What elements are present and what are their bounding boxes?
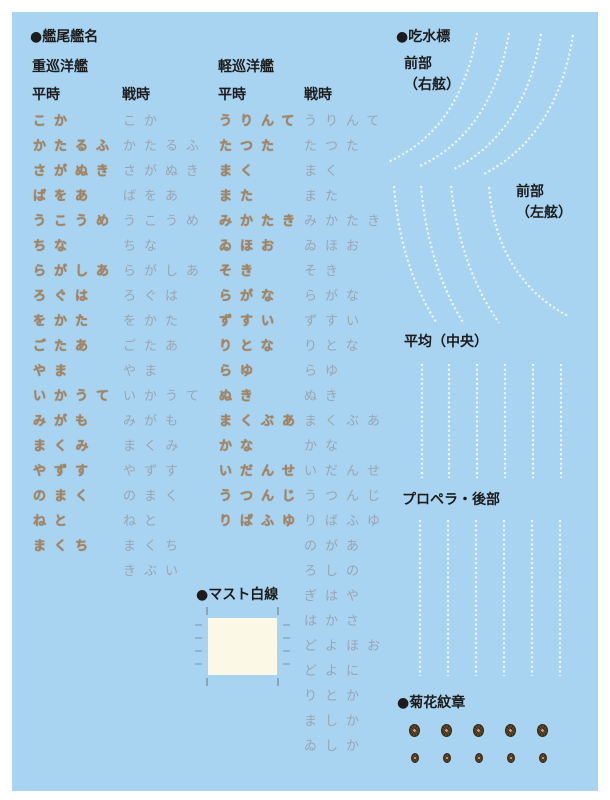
ship-name-gold: うこうめ [33, 209, 117, 234]
registration-tick [283, 663, 290, 665]
propeller-rear-label: プロペラ・後部 [402, 490, 500, 510]
ship-name-gold: らゆ [219, 359, 303, 384]
registration-tick [277, 607, 279, 615]
registration-tick [277, 678, 279, 686]
ship-name-gold: ちな [33, 234, 117, 259]
ship-name-gold: まくち [33, 534, 117, 559]
ship-name-gray: らがな [304, 284, 388, 309]
heavy-wartime-header: 戦時 [122, 85, 150, 105]
ship-name-gray: ずすい [304, 309, 388, 334]
ship-name-gold: まく [219, 159, 303, 184]
ship-name-gold: やま [33, 359, 117, 384]
ship-name-gold: そき [219, 259, 303, 284]
chrysanthemum-crest-icon [441, 724, 452, 737]
ship-name-gold: やずす [33, 459, 117, 484]
ship-name-gold: みかたき [219, 209, 303, 234]
ship-name-gray: りとか [304, 684, 388, 709]
ship-name-gray: まく [304, 159, 388, 184]
ship-name-gray: ぬき [304, 384, 388, 409]
ship-name-gold: こか [33, 109, 117, 134]
mast-white-line-title: ●マスト白線 [196, 585, 278, 605]
ship-name-gold: さがぬき [33, 159, 117, 184]
heavy-peacetime-header: 平時 [32, 85, 60, 105]
ship-name-gray: ろぐは [123, 284, 207, 309]
ship-name-gray: やずす [123, 459, 207, 484]
ship-name-gray: さがぬき [123, 159, 207, 184]
chrysanthemum-crest-icon [475, 753, 483, 763]
ship-name-gray: はかさ [304, 609, 388, 634]
ship-name-gray: ぎはや [304, 584, 388, 609]
light-peacetime-header: 平時 [218, 85, 246, 105]
chrysanthemum-crest-icon [505, 724, 516, 737]
ship-name-gray: いだんせ [304, 459, 388, 484]
registration-tick [195, 663, 202, 665]
ship-name-gray: まくち [123, 534, 207, 559]
ship-name-gray: うこうめ [123, 209, 207, 234]
chrysanthemum-crest-icon [409, 724, 420, 737]
item [411, 753, 571, 763]
ship-name-gray: ゐほお [304, 234, 388, 259]
ship-name-gold: みがも [33, 409, 117, 434]
ship-name-gold: ろぐは [33, 284, 117, 309]
registration-tick [206, 607, 208, 615]
ship-name-gray: こか [123, 109, 207, 134]
ship-name-gold: また [219, 184, 303, 209]
chrysanthemum-crest-icon [473, 724, 484, 737]
ship-name-gray: のがあ [304, 534, 388, 559]
ship-name-gray: りばふゆ [304, 509, 388, 534]
heavy-wartime-name-column: こかかたるふさがぬきばをあうこうめちならがしあろぐはをかたごたあやまいかうてみが… [123, 109, 207, 584]
item [409, 724, 569, 737]
draft-marks-title: ●吃水標 [396, 27, 450, 47]
registration-tick [195, 637, 202, 639]
ship-name-gray: かたるふ [123, 134, 207, 159]
ship-name-gold: ばをあ [33, 184, 117, 209]
heavy-cruiser-header: 重巡洋艦 [32, 57, 88, 77]
ship-name-gold: ねと [33, 509, 117, 534]
registration-tick [283, 637, 290, 639]
ship-name-gray: どよほお [304, 634, 388, 659]
chrysanthemum-crest-icon [411, 753, 419, 763]
chrysanthemum-crest-icon [539, 753, 547, 763]
light-wartime-name-column: うりんてたつたまくまたみかたきゐほおそきらがなずすいりとならゆぬきまくぶあかない… [304, 109, 388, 759]
ship-name-gray: たつた [304, 134, 388, 159]
ship-name-gold: うつんじ [219, 484, 303, 509]
ship-name-gray: ねと [123, 509, 207, 534]
ship-name-gray: うつんじ [304, 484, 388, 509]
ship-name-gray: やま [123, 359, 207, 384]
ship-name-gold: ごたあ [33, 334, 117, 359]
ship-name-gold: ゐほお [219, 234, 303, 259]
average-center-label: 平均（中央） [404, 332, 488, 352]
ship-name-gray: らがしあ [123, 259, 207, 284]
chrysanthemum-crest-icon [537, 724, 548, 737]
chrysanthemum-crest-icon [507, 753, 515, 763]
ship-name-gold: らがな [219, 284, 303, 309]
ship-name-gray: ちな [123, 234, 207, 259]
ship-name-gold: うりんて [219, 109, 303, 134]
ship-name-gold: らがしあ [33, 259, 117, 284]
registration-tick [195, 624, 202, 626]
ship-name-gray: ゐしか [304, 734, 388, 759]
registration-tick [283, 624, 290, 626]
heavy-peacetime-name-column: こかかたるふさがぬきばをあうこうめちならがしあろぐはをかたごたあやまいかうてみが… [33, 109, 117, 559]
mast-white-line-decal [208, 618, 277, 675]
chrysanthemum-crest-title: ●菊花紋章 [397, 693, 465, 713]
ship-name-gold: ずすい [219, 309, 303, 334]
ship-name-gold: いかうて [33, 384, 117, 409]
light-wartime-header: 戦時 [304, 85, 332, 105]
decal-sheet-page: ●艦尾艦名 重巡洋艦 軽巡洋艦 平時 戦時 平時 戦時 こかかたるふさがぬきばを… [0, 0, 610, 800]
ship-name-gray: きぶい [123, 559, 207, 584]
registration-tick [206, 678, 208, 686]
ship-name-gray: まくぶあ [304, 409, 388, 434]
ship-name-gold: をかた [33, 309, 117, 334]
ship-name-gray: いかうて [123, 384, 207, 409]
light-cruiser-header: 軽巡洋艦 [218, 57, 274, 77]
ship-name-gold: りばふゆ [219, 509, 303, 534]
crest-row-large [409, 724, 569, 737]
ship-name-gray: みがも [123, 409, 207, 434]
ship-name-gray: のまく [123, 484, 207, 509]
ship-name-gold: のまく [33, 484, 117, 509]
ship-name-gold: まくぶあ [219, 409, 303, 434]
ship-name-gray: うりんて [304, 109, 388, 134]
ship-name-gray: まくみ [123, 434, 207, 459]
crest-row-small [411, 753, 571, 763]
ship-name-gray: どよに [304, 659, 388, 684]
ship-name-gray: ばをあ [123, 184, 207, 209]
front-port-label: 前部 （左舷） [516, 182, 572, 224]
ship-name-gray: りとな [304, 334, 388, 359]
front-starboard-label: 前部 （右舷） [404, 54, 460, 96]
registration-tick [283, 650, 290, 652]
ship-name-gold: まくみ [33, 434, 117, 459]
ship-name-gold: りとな [219, 334, 303, 359]
ship-name-gray: ごたあ [123, 334, 207, 359]
ship-name-gray: また [304, 184, 388, 209]
ship-name-gold: たつた [219, 134, 303, 159]
ship-name-gray: ろしの [304, 559, 388, 584]
stern-names-title: ●艦尾艦名 [30, 27, 98, 47]
registration-tick [195, 650, 202, 652]
ship-name-gray: そき [304, 259, 388, 284]
ship-name-gold: いだんせ [219, 459, 303, 484]
ship-name-gold: ぬき [219, 384, 303, 409]
ship-name-gray: かな [304, 434, 388, 459]
ship-name-gold: かたるふ [33, 134, 117, 159]
light-peacetime-name-column: うりんてたつたまくまたみかたきゐほおそきらがなずすいりとならゆぬきまくぶあかない… [219, 109, 303, 534]
ship-name-gray: をかた [123, 309, 207, 334]
ship-name-gray: みかたき [304, 209, 388, 234]
chrysanthemum-crest-icon [443, 753, 451, 763]
ship-name-gray: らゆ [304, 359, 388, 384]
ship-name-gold: かな [219, 434, 303, 459]
ship-name-gray: ましか [304, 709, 388, 734]
